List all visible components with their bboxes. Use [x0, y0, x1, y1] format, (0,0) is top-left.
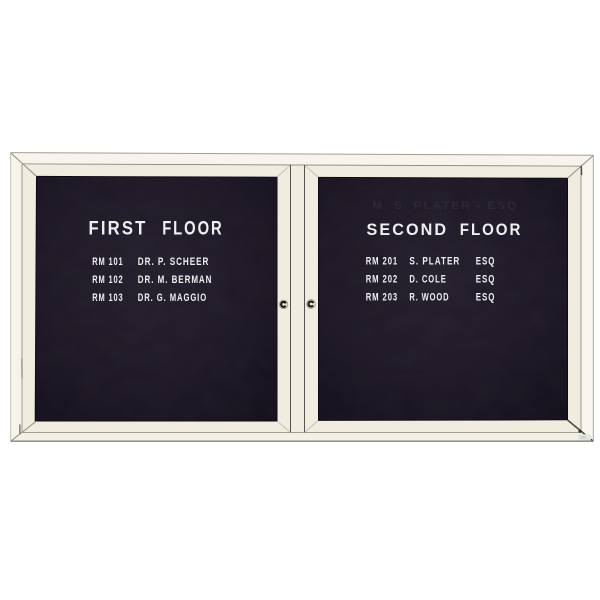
svg-text:D. COLE: D. COLE — [409, 273, 446, 285]
svg-text:RM 103: RM 103 — [92, 292, 123, 304]
svg-text:R. WOOD: R. WOOD — [409, 291, 449, 303]
svg-text:DR. M. BERMAN: DR. M. BERMAN — [138, 274, 213, 286]
svg-text:S. PLATER: S. PLATER — [409, 255, 460, 267]
svg-text:RM 201: RM 201 — [366, 255, 398, 267]
svg-text:RM 203: RM 203 — [366, 291, 398, 303]
svg-text:FIRST: FIRST — [89, 218, 148, 240]
svg-text:RM 202: RM 202 — [366, 273, 398, 285]
svg-text:ESQ: ESQ — [476, 255, 496, 267]
svg-text:FLOOR: FLOOR — [460, 220, 523, 239]
svg-text:M. S. PLATER - ESQ: M. S. PLATER - ESQ — [372, 200, 518, 212]
svg-text:DR. G. MAGGIO: DR. G. MAGGIO — [138, 292, 207, 304]
svg-text:FLOOR: FLOOR — [162, 218, 224, 240]
svg-text:SECOND: SECOND — [367, 220, 449, 239]
svg-text:DR. P. SCHEER: DR. P. SCHEER — [138, 256, 210, 268]
svg-text:RM 102: RM 102 — [92, 274, 123, 286]
svg-text:ESQ: ESQ — [476, 273, 496, 285]
svg-text:ESQ: ESQ — [476, 291, 496, 303]
svg-text:RM 101: RM 101 — [92, 256, 123, 268]
